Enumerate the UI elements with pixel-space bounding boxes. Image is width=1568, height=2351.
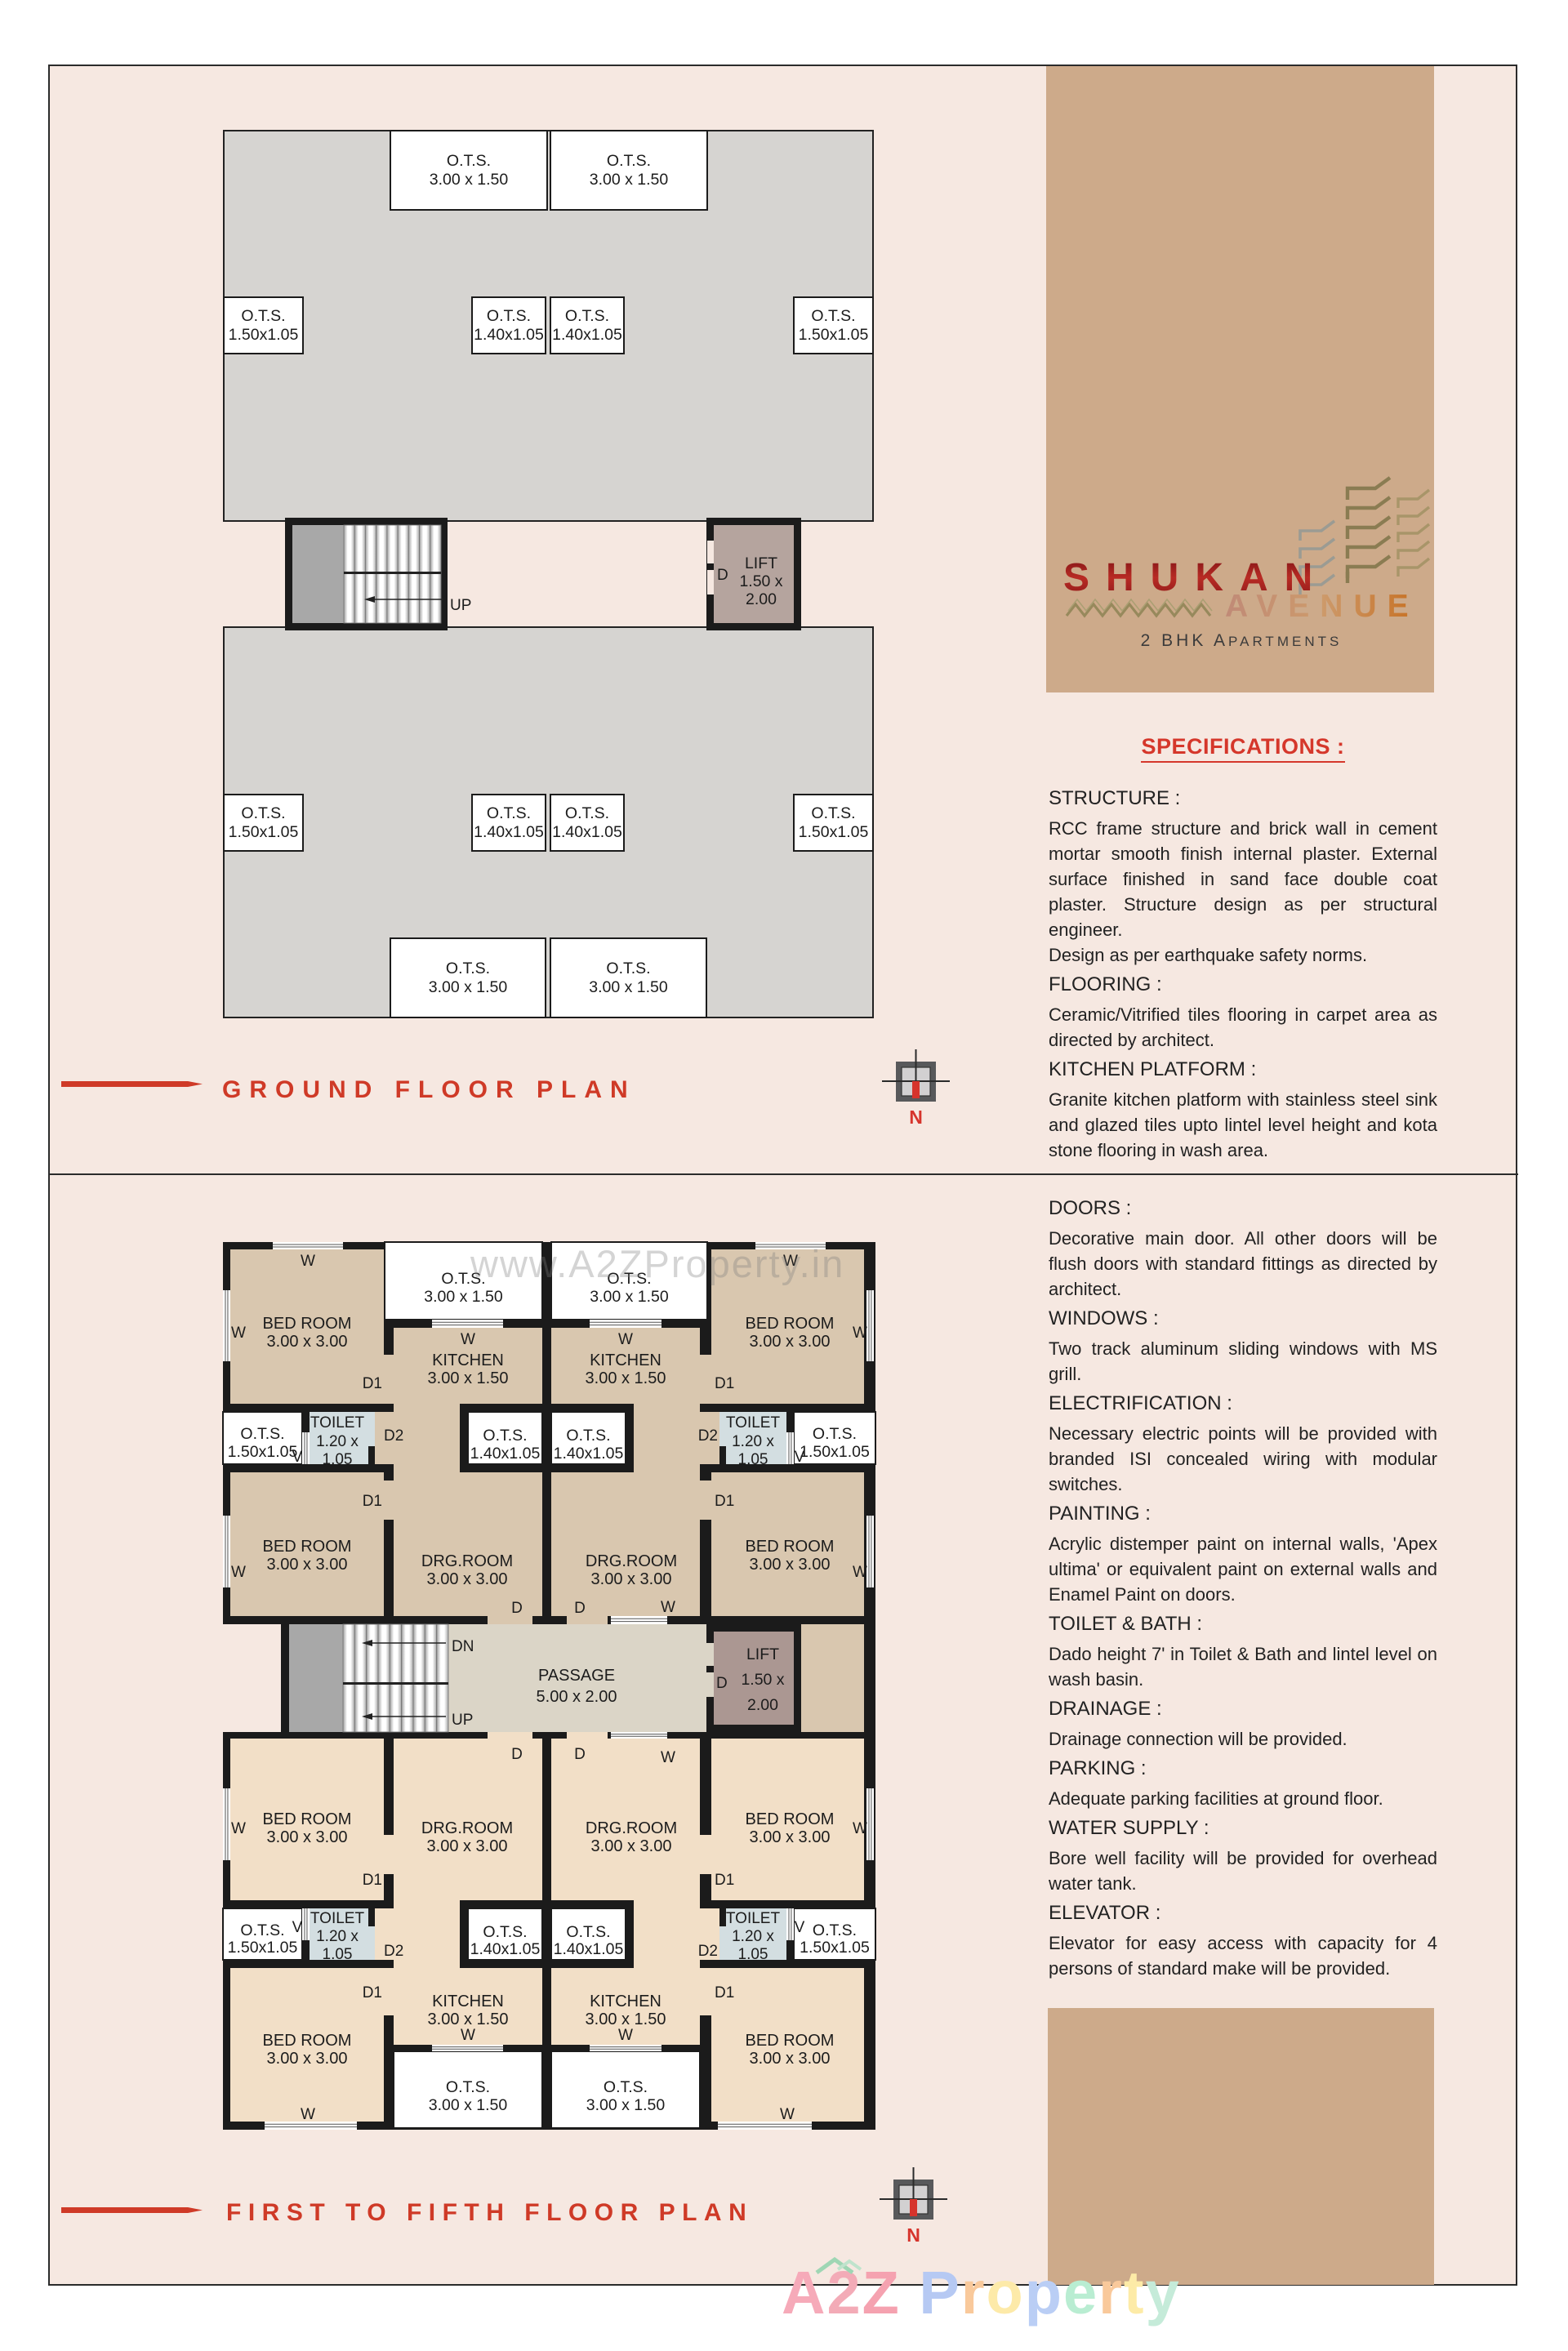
svg-text:V: V (795, 1919, 805, 1936)
svg-text:O.T.S.: O.T.S. (811, 804, 855, 822)
svg-text:W: W (461, 2027, 475, 2044)
svg-text:TOILET: TOILET (310, 1910, 365, 1927)
svg-text:1.50x1.05: 1.50x1.05 (800, 1443, 870, 1461)
svg-text:1.50 x: 1.50 x (739, 572, 782, 590)
svg-text:W: W (853, 1325, 867, 1342)
svg-text:O.T.S.: O.T.S. (446, 960, 490, 977)
svg-text:O.T.S.: O.T.S. (447, 152, 491, 170)
svg-text:3.00 x 1.50: 3.00 x 1.50 (589, 978, 668, 996)
svg-text:BED ROOM: BED ROOM (263, 2032, 352, 2050)
svg-text:1.50x1.05: 1.50x1.05 (228, 1443, 298, 1461)
svg-text:O.T.S.: O.T.S. (565, 307, 609, 325)
svg-text:V: V (292, 1919, 303, 1936)
svg-text:N: N (906, 2224, 920, 2246)
svg-text:BED ROOM: BED ROOM (263, 1810, 352, 1828)
svg-text:3.00 x 1.50: 3.00 x 1.50 (429, 2096, 508, 2114)
svg-text:3.00 x 3.00: 3.00 x 3.00 (591, 1570, 672, 1588)
svg-text:O.T.S.: O.T.S. (606, 960, 650, 977)
svg-text:1.40x1.05: 1.40x1.05 (554, 1445, 624, 1463)
svg-text:1.40x1.05: 1.40x1.05 (552, 326, 622, 344)
svg-text:3.00 x 3.00: 3.00 x 3.00 (750, 1556, 831, 1574)
svg-text:O.T.S.: O.T.S. (241, 307, 285, 325)
svg-text:V: V (292, 1449, 303, 1466)
svg-text:BED ROOM: BED ROOM (746, 1315, 835, 1333)
svg-text:O.T.S.: O.T.S. (240, 1425, 284, 1443)
svg-text:3.00 x 1.50: 3.00 x 1.50 (586, 1369, 666, 1387)
svg-text:3.00 x 1.50: 3.00 x 1.50 (590, 171, 669, 189)
svg-text:1.05: 1.05 (323, 1946, 353, 1963)
svg-text:D: D (511, 1600, 523, 1617)
svg-text:PASSAGE: PASSAGE (538, 1667, 615, 1685)
svg-text:1.40x1.05: 1.40x1.05 (474, 326, 544, 344)
svg-text:1.05: 1.05 (323, 1451, 353, 1468)
svg-text:3.00 x 3.00: 3.00 x 3.00 (427, 1570, 508, 1588)
svg-text:BED ROOM: BED ROOM (263, 1538, 352, 1556)
svg-text:GROUND FLOOR PLAN: GROUND FLOOR PLAN (222, 1076, 636, 1103)
svg-text:3.00 x 3.00: 3.00 x 3.00 (750, 2050, 831, 2068)
svg-text:1.20 x: 1.20 x (732, 1433, 774, 1450)
svg-text:1.05: 1.05 (738, 1946, 768, 1963)
svg-text:V: V (795, 1449, 805, 1466)
svg-text:KITCHEN: KITCHEN (590, 1993, 661, 2010)
svg-text:3.00 x 1.50: 3.00 x 1.50 (430, 171, 509, 189)
svg-text:DN: DN (452, 1638, 474, 1655)
svg-text:DRG.ROOM: DRG.ROOM (586, 1819, 677, 1837)
svg-text:1.20 x: 1.20 x (316, 1433, 359, 1450)
svg-text:1.50 x: 1.50 x (741, 1671, 784, 1689)
svg-text:1.50x1.05: 1.50x1.05 (229, 326, 299, 344)
svg-text:D1: D1 (715, 1375, 734, 1392)
svg-text:D1: D1 (715, 1984, 734, 2001)
svg-text:D2: D2 (698, 1943, 718, 1960)
svg-text:D1: D1 (363, 1375, 382, 1392)
svg-text:3.00 x 3.00: 3.00 x 3.00 (267, 1556, 348, 1574)
svg-text:O.T.S.: O.T.S. (604, 2078, 648, 2096)
svg-text:W: W (301, 2106, 315, 2123)
svg-text:1.40x1.05: 1.40x1.05 (474, 823, 544, 841)
svg-text:2.00: 2.00 (747, 1696, 778, 1714)
svg-text:O.T.S.: O.T.S. (813, 1921, 857, 1939)
svg-text:D2: D2 (698, 1427, 718, 1445)
svg-text:D: D (574, 1600, 586, 1617)
svg-text:LIFT: LIFT (746, 1645, 779, 1663)
svg-text:O.T.S.: O.T.S. (487, 804, 531, 822)
svg-text:2 BHK APARTMENTS: 2 BHK APARTMENTS (1141, 631, 1343, 650)
svg-text:3.00 x 3.00: 3.00 x 3.00 (591, 1837, 672, 1855)
svg-text:3.00 x 1.50: 3.00 x 1.50 (424, 1288, 503, 1306)
svg-text:BED ROOM: BED ROOM (746, 1810, 835, 1828)
svg-text:5.00 x 2.00: 5.00 x 2.00 (537, 1688, 617, 1706)
svg-text:3.00 x 3.00: 3.00 x 3.00 (267, 1333, 348, 1351)
svg-text:D2: D2 (384, 1427, 403, 1445)
svg-text:O.T.S.: O.T.S. (813, 1425, 857, 1443)
svg-text:DRG.ROOM: DRG.ROOM (586, 1552, 677, 1570)
svg-text:DRG.ROOM: DRG.ROOM (421, 1552, 513, 1570)
svg-text:3.00 x 1.50: 3.00 x 1.50 (590, 1288, 669, 1306)
svg-text:W: W (231, 1820, 246, 1837)
svg-text:1.40x1.05: 1.40x1.05 (470, 1940, 541, 1958)
svg-text:1.40x1.05: 1.40x1.05 (554, 1940, 624, 1958)
svg-text:TOILET: TOILET (726, 1414, 781, 1432)
svg-text:O.T.S.: O.T.S. (446, 2078, 490, 2096)
svg-text:1.50x1.05: 1.50x1.05 (799, 823, 869, 841)
svg-text:D1: D1 (363, 1984, 382, 2001)
svg-text:www.A2ZProperty.in: www.A2ZProperty.in (470, 1242, 844, 1285)
svg-text:O.T.S.: O.T.S. (566, 1427, 610, 1445)
svg-text:BED ROOM: BED ROOM (746, 2032, 835, 2050)
svg-text:D1: D1 (363, 1493, 382, 1510)
svg-text:A2Z Property: A2Z Property (782, 2259, 1181, 2327)
svg-text:3.00 x 3.00: 3.00 x 3.00 (267, 1828, 348, 1846)
svg-text:O.T.S.: O.T.S. (240, 1921, 284, 1939)
svg-text:O.T.S.: O.T.S. (241, 804, 285, 822)
svg-text:W: W (853, 1564, 867, 1581)
svg-text:1.40x1.05: 1.40x1.05 (470, 1445, 541, 1463)
svg-text:O.T.S.: O.T.S. (565, 804, 609, 822)
svg-text:UP: UP (450, 597, 471, 614)
svg-text:O.T.S.: O.T.S. (607, 152, 651, 170)
svg-text:W: W (301, 1253, 315, 1270)
svg-text:3.00 x 3.00: 3.00 x 3.00 (750, 1828, 831, 1846)
svg-text:D: D (511, 1746, 523, 1763)
svg-text:O.T.S.: O.T.S. (483, 1923, 527, 1941)
svg-text:D: D (574, 1746, 586, 1763)
svg-text:1.20 x: 1.20 x (732, 1928, 774, 1945)
svg-text:BED ROOM: BED ROOM (746, 1538, 835, 1556)
svg-text:W: W (618, 2027, 633, 2044)
svg-text:LIFT: LIFT (745, 554, 777, 572)
svg-text:3.00 x 1.50: 3.00 x 1.50 (586, 2010, 666, 2028)
svg-text:AVENUE: AVENUE (1225, 589, 1419, 624)
svg-text:KITCHEN: KITCHEN (432, 1993, 504, 2010)
svg-text:3.00 x 1.50: 3.00 x 1.50 (428, 2010, 509, 2028)
svg-text:W: W (661, 1749, 675, 1766)
svg-text:3.00 x 1.50: 3.00 x 1.50 (429, 978, 508, 996)
svg-text:W: W (461, 1331, 475, 1348)
svg-text:O.T.S.: O.T.S. (566, 1923, 610, 1941)
svg-text:W: W (853, 1820, 867, 1837)
svg-text:3.00 x 3.00: 3.00 x 3.00 (427, 1837, 508, 1855)
svg-text:W: W (780, 2106, 795, 2123)
svg-text:FIRST TO FIFTH FLOOR PLAN: FIRST TO FIFTH FLOOR PLAN (226, 2199, 753, 2226)
svg-text:D1: D1 (715, 1493, 734, 1510)
svg-text:D1: D1 (363, 1872, 382, 1889)
svg-text:3.00 x 1.50: 3.00 x 1.50 (586, 2096, 666, 2114)
svg-text:D: D (717, 567, 728, 584)
svg-text:3.00 x 3.00: 3.00 x 3.00 (267, 2050, 348, 2068)
svg-text:1.05: 1.05 (738, 1451, 768, 1468)
svg-text:BED ROOM: BED ROOM (263, 1315, 352, 1333)
svg-text:1.40x1.05: 1.40x1.05 (552, 823, 622, 841)
svg-text:3.00 x 1.50: 3.00 x 1.50 (428, 1369, 509, 1387)
svg-text:O.T.S.: O.T.S. (811, 307, 855, 325)
svg-text:W: W (618, 1331, 633, 1348)
svg-text:TOILET: TOILET (726, 1910, 781, 1927)
svg-text:1.20 x: 1.20 x (316, 1928, 359, 1945)
svg-text:W: W (231, 1325, 246, 1342)
svg-text:D: D (716, 1675, 728, 1692)
svg-text:1.50x1.05: 1.50x1.05 (800, 1939, 870, 1957)
svg-text:DRG.ROOM: DRG.ROOM (421, 1819, 513, 1837)
svg-text:1.50x1.05: 1.50x1.05 (799, 326, 869, 344)
svg-text:KITCHEN: KITCHEN (590, 1351, 661, 1369)
svg-text:N: N (909, 1106, 923, 1128)
svg-text:UP: UP (452, 1712, 473, 1729)
svg-text:TOILET: TOILET (310, 1414, 365, 1432)
svg-text:1.50x1.05: 1.50x1.05 (228, 1939, 298, 1957)
svg-text:O.T.S.: O.T.S. (487, 307, 531, 325)
svg-text:W: W (661, 1599, 675, 1616)
svg-text:1.50x1.05: 1.50x1.05 (229, 823, 299, 841)
svg-text:D2: D2 (384, 1943, 403, 1960)
svg-text:W: W (231, 1564, 246, 1581)
svg-text:O.T.S.: O.T.S. (483, 1427, 527, 1445)
svg-text:KITCHEN: KITCHEN (432, 1351, 504, 1369)
svg-text:3.00 x 3.00: 3.00 x 3.00 (750, 1333, 831, 1351)
svg-text:D1: D1 (715, 1872, 734, 1889)
svg-text:2.00: 2.00 (746, 590, 777, 608)
